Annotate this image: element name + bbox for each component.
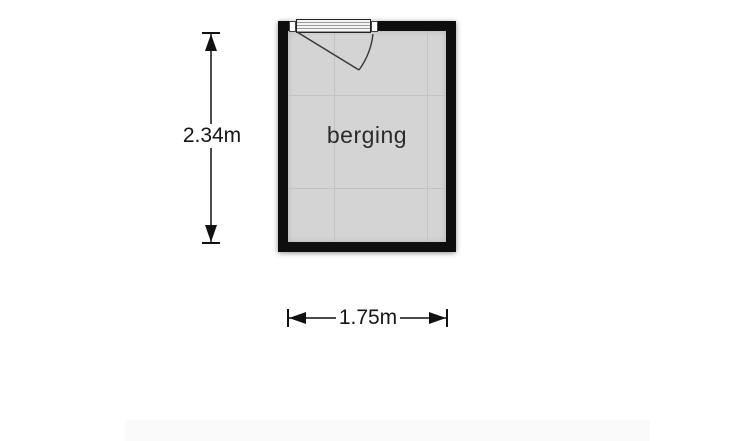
arrowhead-right-icon <box>429 312 446 324</box>
floor-tile-line-horizontal-2 <box>288 188 446 189</box>
height-dimension-label: 2.34m <box>180 124 244 148</box>
bottom-faint-band <box>125 420 650 441</box>
width-dimension-label: 1.75m <box>336 306 400 330</box>
arrowhead-left-icon <box>289 312 306 324</box>
arrowhead-down-icon <box>205 225 217 242</box>
room-name-label: berging <box>288 122 446 149</box>
door-swing-arc <box>359 34 373 70</box>
arrowhead-up-icon <box>205 34 217 51</box>
door-swing-icon <box>285 18 385 78</box>
floorplan-canvas: berging 2.34m 1.75m <box>0 0 750 441</box>
floor-tile-line-horizontal-1 <box>288 95 446 96</box>
door-leaf-line <box>297 32 359 70</box>
